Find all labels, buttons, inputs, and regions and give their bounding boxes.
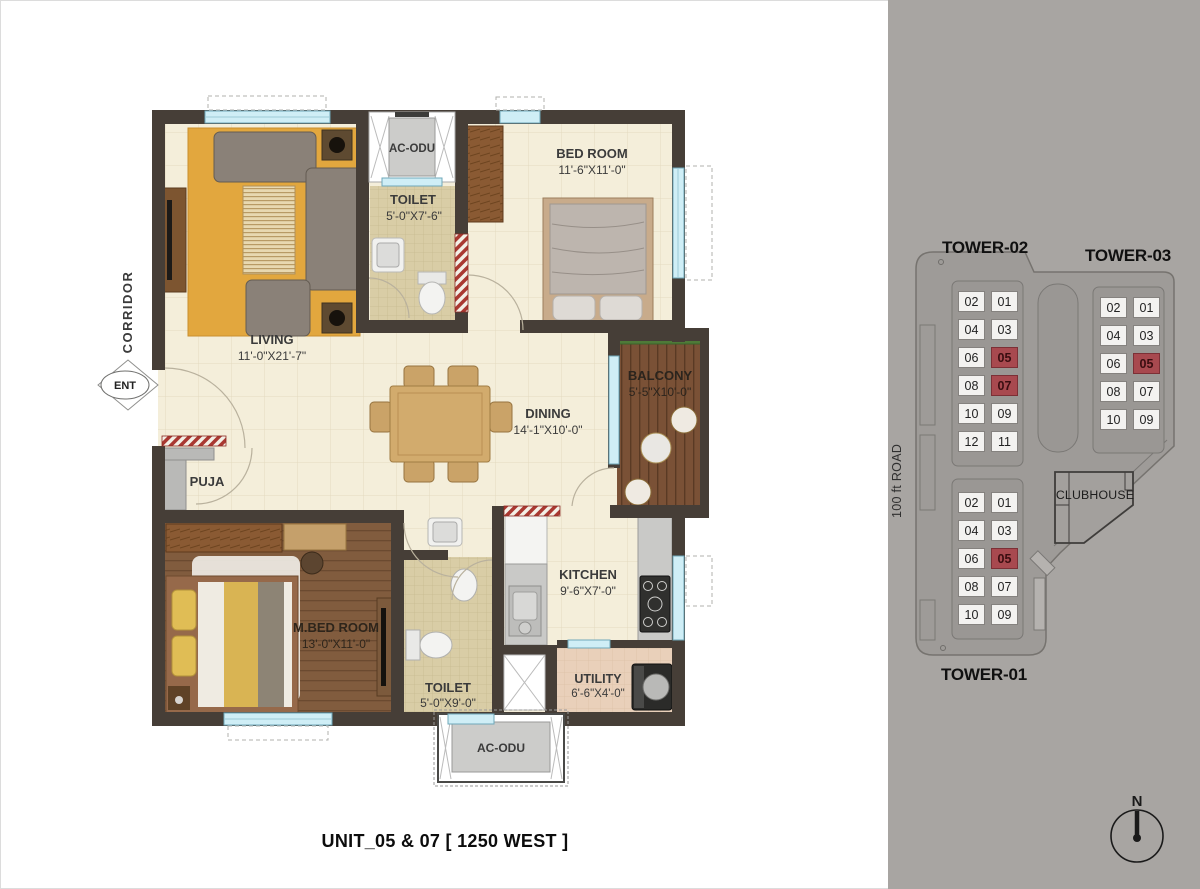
- north-label: N: [1132, 793, 1143, 810]
- tower-01-unit-09: 09: [991, 604, 1018, 625]
- utility-label: UTILITY: [574, 672, 622, 686]
- tower-02-unit-08: 08: [958, 375, 985, 396]
- tower-01-unit-05: 05: [991, 548, 1018, 569]
- corridor-label: CORRIDOR: [120, 271, 135, 354]
- tower-02-unit-12: 12: [958, 431, 985, 452]
- tower-03-unit-01: 01: [1133, 297, 1160, 318]
- mbedroom-dims: 13'-0"X11'-0": [302, 637, 370, 651]
- tower-02-unit-05: 05: [991, 347, 1018, 368]
- tower-03-unit-08: 08: [1100, 381, 1127, 402]
- tower-02-unit-06: 06: [958, 347, 985, 368]
- tower-01-unit-04: 04: [958, 520, 985, 541]
- plan-title: UNIT_05 & 07 [ 1250 WEST ]: [180, 831, 710, 852]
- toilet-top-dims: 5'-0"X7'-6": [386, 209, 442, 223]
- ac-odu-top-label: AC-ODU: [389, 143, 435, 155]
- tower-02-unit-03: 03: [991, 319, 1018, 340]
- utility-dims: 6'-6"X4'-0": [571, 688, 624, 700]
- entry-marker: ENT: [98, 360, 158, 410]
- dining-dims: 14'-1"X10'-0": [513, 423, 582, 437]
- tower-01-unit-02: 02: [958, 492, 985, 513]
- living-furniture: [164, 128, 364, 336]
- tower-01-unit-03: 03: [991, 520, 1018, 541]
- tower-02-unit-11: 11: [991, 431, 1018, 452]
- tower-03-unit-03: 03: [1133, 325, 1160, 346]
- tower-03-unit-04: 04: [1100, 325, 1127, 346]
- tower-02-label: TOWER-02: [920, 238, 1050, 258]
- toilet-bottom-dims: 5'-0"X9'-0": [420, 696, 476, 710]
- puja-label: PUJA: [190, 474, 225, 489]
- living-dims: 11'-0"X21'-7": [238, 349, 306, 363]
- tower-02-unit-01: 01: [991, 291, 1018, 312]
- living-label: LIVING: [250, 332, 293, 347]
- ac-odu-bottom-label: AC-ODU: [477, 741, 525, 755]
- entry-label: ENT: [114, 380, 136, 392]
- toilet-top-label: TOILET: [390, 192, 436, 207]
- tower-01-unit-08: 08: [958, 576, 985, 597]
- tower-02-unit-07: 07: [991, 375, 1018, 396]
- tower-03-label: TOWER-03: [1063, 246, 1193, 266]
- tower-03-unit-09: 09: [1133, 409, 1160, 430]
- tower-03-unit-07: 07: [1133, 381, 1160, 402]
- tower-03-unit-05: 05: [1133, 353, 1160, 374]
- bedroom-label: BED ROOM: [556, 146, 628, 161]
- floor-plan: ENT CORRIDOR LIVING 11'-0"X21'-7" AC-ODU…: [0, 0, 888, 889]
- washing-machine: [632, 664, 672, 710]
- floor-plan-page: ENT CORRIDOR LIVING 11'-0"X21'-7" AC-ODU…: [0, 0, 1200, 889]
- tower-02-unit-02: 02: [958, 291, 985, 312]
- duct-shaft: [504, 655, 545, 710]
- road-label: 100 ft ROAD: [890, 434, 904, 518]
- kitchen-dims: 9'-6"X7'-0": [560, 584, 616, 598]
- clubhouse-label: CLUBHOUSE: [1043, 488, 1147, 502]
- kitchen-label: KITCHEN: [559, 567, 617, 582]
- balcony-label: BALCONY: [628, 368, 693, 383]
- tower-01-unit-10: 10: [958, 604, 985, 625]
- tower-02-unit-04: 04: [958, 319, 985, 340]
- tower-03-unit-02: 02: [1100, 297, 1127, 318]
- clubhouse: [1055, 472, 1133, 543]
- tower-01-unit-01: 01: [991, 492, 1018, 513]
- dining-label: DINING: [525, 406, 571, 421]
- tower-02-unit-10: 10: [958, 403, 985, 424]
- tower-03-unit-06: 06: [1100, 353, 1127, 374]
- tower-03-unit-10: 10: [1100, 409, 1127, 430]
- tower-01-unit-06: 06: [958, 548, 985, 569]
- north-arrow: N: [1111, 793, 1163, 862]
- tower-01-unit-07: 07: [991, 576, 1018, 597]
- toilet-bottom-label: TOILET: [425, 680, 471, 695]
- key-plan-panel: N TOWER-02 TOWER-03 TOWER-01 CLUBHOUSE 1…: [888, 0, 1200, 889]
- site-map: N: [888, 0, 1200, 889]
- tower-02-unit-09: 09: [991, 403, 1018, 424]
- mbedroom-label: M.BED ROOM: [293, 620, 379, 635]
- bedroom-dims: 11'-6"X11'-0": [558, 163, 625, 177]
- balcony-dims: 5'-5"X10'-0": [629, 385, 691, 399]
- tower-01-label: TOWER-01: [919, 665, 1049, 685]
